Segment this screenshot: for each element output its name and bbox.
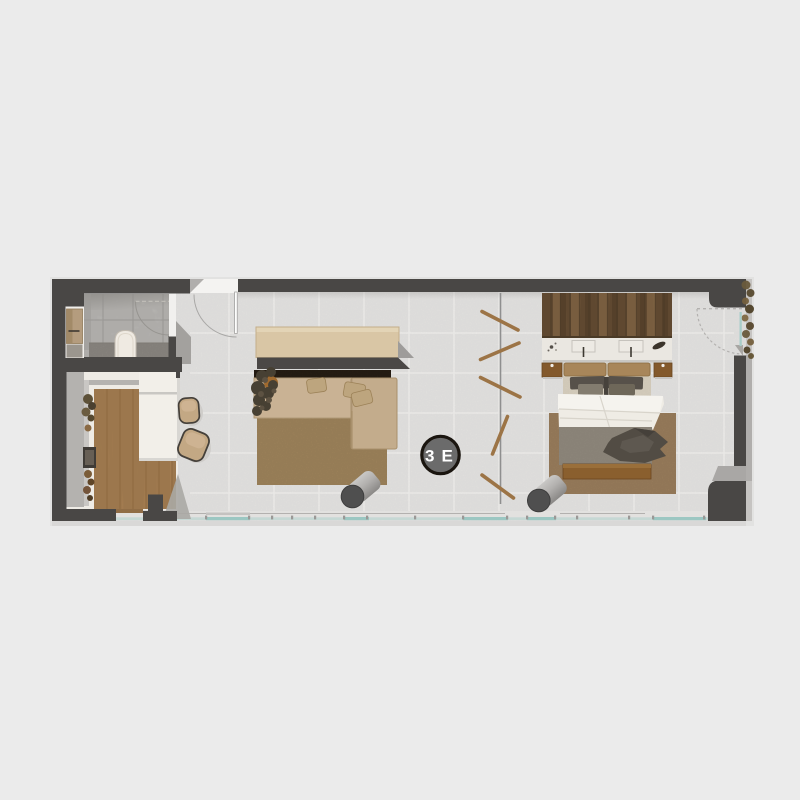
svg-text:3 E: 3 E	[425, 447, 454, 466]
